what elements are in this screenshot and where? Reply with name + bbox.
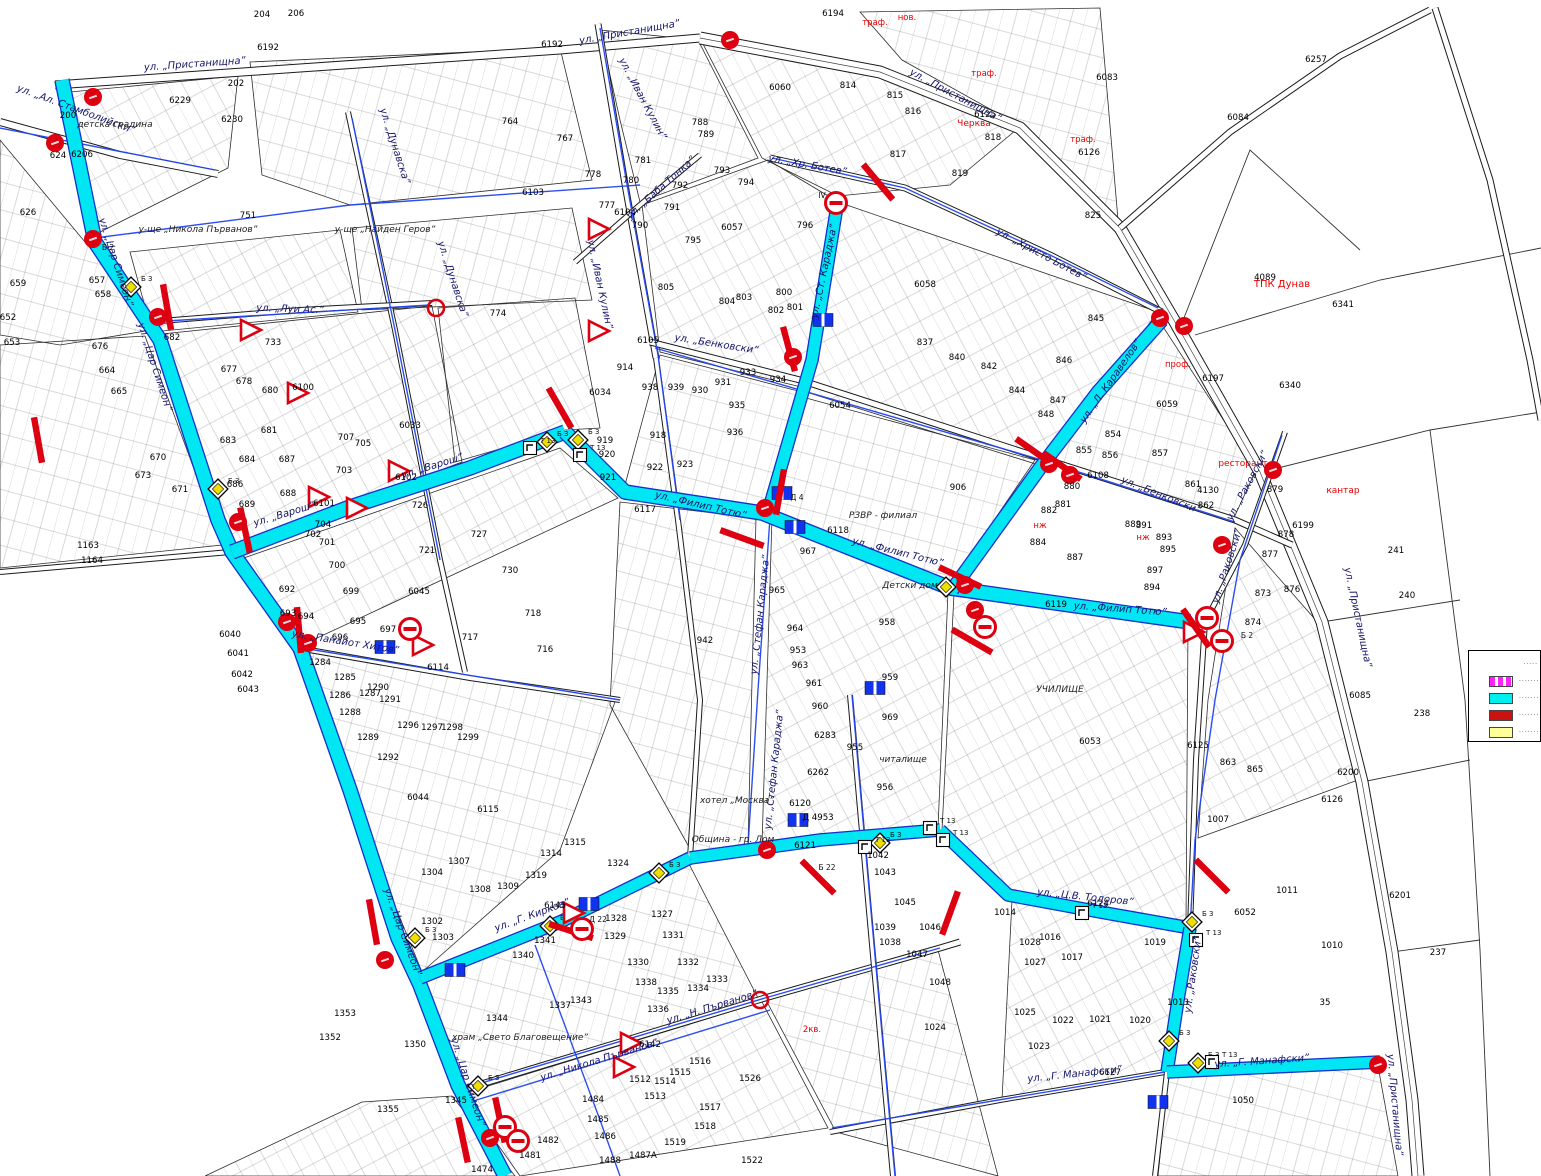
hydrant-circle-icon	[1369, 1056, 1387, 1074]
parcel-number: 1337	[549, 1001, 571, 1011]
parcel-number: 803	[736, 293, 752, 303]
parcel-number: 6053	[1079, 737, 1101, 747]
parcel-number: 1338	[635, 978, 657, 988]
map-canvas[interactable]: Б 3Б 3Б 3Б 3Б 3Б 3Б 3Б 3Б 3Б 3Б 3Б 3Б 3Т…	[0, 0, 1541, 1176]
valve-bar-icon	[366, 899, 380, 945]
parcel-number: 6199	[1292, 521, 1314, 531]
fitting-square-icon	[924, 822, 937, 835]
parcel-number: 1290	[367, 683, 389, 693]
parcel-number: 814	[840, 81, 856, 91]
parcel-number: 895	[1160, 545, 1176, 555]
parcel-number: 705	[355, 439, 371, 449]
parcel-number: 1025	[1014, 1008, 1036, 1018]
hydrant-flag-icon	[445, 964, 465, 977]
parcel-number: 6057	[721, 223, 743, 233]
cadastral-map-root: Б 3Б 3Б 3Б 3Б 3Б 3Б 3Б 3Б 3Б 3Б 3Б 3Б 3Т…	[0, 0, 1541, 1176]
parcel-number: 847	[1050, 396, 1066, 406]
hydrant-circle-icon	[1040, 455, 1058, 473]
parcel-boundary	[1262, 412, 1541, 472]
parcel-number: 1043	[874, 868, 896, 878]
parcel-number: 241	[1388, 546, 1404, 556]
parcel-number: 1488	[599, 1156, 621, 1166]
parcel-number: 718	[525, 609, 541, 619]
parcel-number: 683	[220, 436, 236, 446]
square-code-label: Т 13	[1205, 929, 1221, 937]
parcel-number: 794	[738, 178, 754, 188]
parcel-number: 795	[685, 236, 701, 246]
parcel-number: 6084	[1227, 113, 1249, 123]
parcel-number: 1340	[512, 951, 534, 961]
parcel-number: 730	[502, 566, 518, 576]
hydrant-circle-icon	[84, 230, 102, 248]
parcel-number: 237	[1430, 948, 1446, 958]
no-entry-sign-icon	[1197, 608, 1218, 629]
parcel-number: 816	[905, 107, 921, 117]
parcel-number: 1047	[906, 950, 928, 960]
parcel-number: 1028	[1019, 938, 1041, 948]
parcel-number: 1319	[525, 871, 547, 881]
parcel-number: 880	[1064, 482, 1080, 492]
parcel-number: 6058	[914, 280, 936, 290]
no-entry-sign-icon	[1212, 631, 1233, 652]
parcel-number: 6126	[1321, 795, 1343, 805]
parcel-number: 1020	[1129, 1016, 1151, 1026]
parcel-number: 721	[419, 546, 435, 556]
parcel-number: 876	[1284, 585, 1300, 595]
parcel-number: 837	[917, 338, 933, 348]
parcel-number: 6105	[637, 336, 659, 346]
legend-item-legend-cyan: ··········	[1489, 690, 1540, 707]
parcel-number: 6201	[1389, 891, 1411, 901]
parcel-number: 1288	[339, 708, 361, 718]
poi-label: РЗВР - филиал	[849, 511, 917, 521]
parcel-number: 204	[254, 10, 270, 20]
road-surface	[1120, 10, 1430, 228]
legend-red-label: ··········	[1519, 712, 1540, 719]
parcel-number: 877	[1262, 550, 1278, 560]
red-annotation-label: проф.	[1165, 360, 1191, 370]
parcel-number: 700	[329, 561, 345, 571]
parcel-number: 1353	[334, 1009, 356, 1019]
parcel-number: 6083	[1096, 73, 1118, 83]
hydrant-circle-icon	[956, 576, 974, 594]
parcel-number: 686	[227, 480, 243, 490]
parcel-number: 863	[1220, 758, 1236, 768]
parcel-number: 1327	[651, 910, 673, 920]
parcel-number: 6043	[237, 685, 259, 695]
parcel-number: 884	[1030, 538, 1046, 548]
parcel-number: 1292	[377, 753, 399, 763]
red-annotation-label: нж	[1136, 533, 1150, 543]
parcel-number: 1518	[694, 1122, 716, 1132]
parcel-number: 678	[236, 377, 252, 387]
parcel-number: 1021	[1089, 1015, 1111, 1025]
parcel-number: 796	[797, 221, 813, 231]
parcel-number: 878	[1278, 530, 1294, 540]
parcel-number: 1328	[605, 914, 627, 924]
parcel-number: 659	[10, 279, 26, 289]
parcel-number: 665	[111, 387, 127, 397]
parcel-number: 6034	[589, 388, 611, 398]
parcel-number: 6101	[313, 499, 335, 509]
parcel-number: 695	[350, 617, 366, 627]
parcel-number: 1512	[629, 1075, 651, 1085]
parcel-number: 6283	[814, 731, 836, 741]
poi-label: детска градина	[76, 120, 152, 130]
parcel-number: 1302	[421, 917, 443, 927]
parcel-number: 815	[887, 91, 903, 101]
legend-item-legend-yellow: ··········	[1489, 724, 1540, 741]
parcel-number: 1487А	[629, 1151, 657, 1161]
legend-item-legend-magenta: ··········	[1489, 673, 1540, 690]
parcel-number: 923	[677, 460, 693, 470]
parcel-number: 933	[740, 368, 756, 378]
parcel-number: 780	[623, 176, 639, 186]
parcel-number: 6262	[807, 768, 829, 778]
tiny-code-label: Д 4	[790, 493, 803, 502]
legend-magenta-swatch	[1489, 676, 1513, 687]
parcel-number: 704	[315, 520, 331, 530]
parcel-number: 6192	[257, 43, 279, 53]
parcel-number: 6206	[71, 150, 93, 160]
parcel-number: 697	[380, 625, 396, 635]
parcel-number: 1355	[377, 1105, 399, 1115]
diamond-code-label: Б 3	[141, 275, 152, 283]
red-annotation-label: нов.	[898, 13, 916, 23]
parcel-number: 6059	[1156, 400, 1178, 410]
parcel-number: 1017	[1061, 953, 1083, 963]
parcel-number: 6197	[1202, 374, 1224, 384]
parcel-number: 1481	[519, 1151, 541, 1161]
parcel-number: 1482	[537, 1136, 559, 1146]
parcel-number: 1314	[540, 849, 562, 859]
parcel-number: 1343	[570, 996, 592, 1006]
parcel-number: 680	[262, 386, 278, 396]
parcel-number: 693	[280, 609, 296, 619]
parcel-number: 1304	[421, 868, 443, 878]
parcel-number: 842	[981, 362, 997, 372]
parcel-number: 6119	[1045, 600, 1067, 610]
parcel-number: 202	[228, 79, 244, 89]
parcel-number: 914	[617, 363, 633, 373]
parcel-number: 1513	[644, 1092, 666, 1102]
parcel-number: 6117	[634, 505, 656, 515]
parcel-number: 733	[265, 338, 281, 348]
parcel-number: 800	[776, 288, 792, 298]
parcel-number: 781	[635, 156, 651, 166]
parcel-number: 846	[1056, 356, 1072, 366]
poi-label: Община - гр. Лом	[692, 835, 775, 845]
parcel-number: 701	[319, 538, 335, 548]
parcel-number: 35	[1320, 998, 1331, 1008]
tiny-code-label: Б 2	[102, 243, 115, 252]
parcel-number: 855	[1076, 446, 1092, 456]
parcel-number: 1284	[309, 658, 331, 668]
parcel-number: 804	[719, 297, 735, 307]
parcel-number: 1164	[81, 556, 103, 566]
parcel-number: 1309	[497, 882, 519, 892]
legend-cyan-swatch	[1489, 693, 1513, 704]
parcel-number: 6041	[227, 649, 249, 659]
parcel-number: 848	[1038, 410, 1054, 420]
parcel-number: 1291	[379, 695, 401, 705]
parcel-number: 825	[1085, 211, 1101, 221]
parcel-number: 624	[50, 151, 66, 161]
parcel-number: 774	[490, 309, 506, 319]
parcel-number: 1307	[448, 857, 470, 867]
parcel-number: 854	[1105, 430, 1121, 440]
parcel-number: 726	[412, 501, 428, 511]
parcel-number: 764	[502, 117, 518, 127]
parcel-number: 6044	[407, 793, 429, 803]
parcel-number: 1038	[879, 938, 901, 948]
parcel-number: 819	[952, 169, 968, 179]
parcel-number: 931	[715, 378, 731, 388]
road-casing	[1120, 10, 1430, 228]
parcel-number: 881	[1055, 500, 1071, 510]
parcel-number: 1046	[919, 923, 941, 933]
parcel-number: 6121	[794, 841, 816, 851]
parcel-number: 1516	[689, 1057, 711, 1067]
parcel-number: 873	[1255, 589, 1271, 599]
parcel-number: 687	[279, 455, 295, 465]
parcel-number: 673	[135, 471, 151, 481]
hydrant-circle-icon	[149, 308, 167, 326]
parcel-number: 802	[768, 306, 784, 316]
red-annotation-label: траф.	[862, 18, 888, 28]
tiny-code-label: IV	[818, 191, 826, 200]
hydrant-circle-icon	[1175, 317, 1193, 335]
parcel-number: 6108	[1087, 471, 1109, 481]
parcel-number: 1519	[664, 1138, 686, 1148]
parcel-number: 793	[714, 166, 730, 176]
parcel-number: 6200	[1337, 768, 1359, 778]
map-legend: ········································…	[1468, 650, 1541, 742]
parcel-number: 653	[4, 338, 20, 348]
no-entry-sign-icon	[508, 1131, 529, 1152]
parcel-number: 1474	[471, 1165, 493, 1175]
parcel-number: 1335	[657, 987, 679, 997]
parcel-number: 707	[338, 433, 354, 443]
parcel-number: 6126	[1078, 148, 1100, 158]
fitting-square-icon	[937, 834, 950, 847]
parcel-number: 919	[597, 436, 613, 446]
parcel-number: Д 4953	[802, 813, 833, 823]
parcel-number: 702	[305, 530, 321, 540]
parcel-number: 626	[20, 208, 36, 218]
diamond-code-label: Б 3	[890, 831, 901, 839]
no-entry-sign-icon	[975, 617, 996, 638]
parcel-number: 789	[698, 130, 714, 140]
parcel-number: 6341	[1332, 300, 1354, 310]
hydrant-circle-icon	[756, 499, 774, 517]
parcel-number: 6229	[169, 96, 191, 106]
parcel-number: 865	[1247, 765, 1263, 775]
parcel-number: 6103	[522, 188, 544, 198]
parcel-number: 1324	[607, 859, 629, 869]
parcel-number: 922	[647, 463, 663, 473]
parcel-number: 1352	[319, 1033, 341, 1043]
valve-bar-icon	[1193, 857, 1230, 894]
tiny-code-label: Д 22	[589, 915, 607, 924]
parcel-number: 939	[668, 383, 684, 393]
parcel-number: 751	[240, 211, 256, 221]
parcel-number: 861	[1185, 480, 1201, 490]
parcel-number: 1296	[397, 721, 419, 731]
parcel-number: 777	[599, 201, 615, 211]
red-annotation-label: кантар	[1326, 486, 1360, 496]
hydrant-circle-icon	[481, 1129, 499, 1147]
parcel-number: 818	[985, 133, 1001, 143]
hydrant-circle-icon	[784, 348, 802, 366]
parcel-number: 1016	[1039, 933, 1061, 943]
parcel-number: 1341	[534, 936, 556, 946]
parcel-number: 958	[879, 618, 895, 628]
parcel-number: 965	[769, 586, 785, 596]
parcel-number: 206	[288, 9, 304, 19]
parcel-number: 671	[172, 485, 188, 495]
parcel-number: 6060	[769, 83, 791, 93]
parcel-number: 1048	[929, 978, 951, 988]
parcel-number: 6040	[219, 630, 241, 640]
parcel-number: 1298	[441, 723, 463, 733]
parcel-number: 918	[650, 431, 666, 441]
legend-yellow-label: ··········	[1519, 729, 1540, 736]
parcel-number: 879	[1267, 485, 1283, 495]
parcel-number: 1330	[627, 958, 649, 968]
parcel-number: 1486	[594, 1132, 616, 1142]
parcel-number: 857	[1152, 449, 1168, 459]
parcel-number: 790	[632, 221, 648, 231]
parcel-number: 1023	[1028, 1042, 1050, 1052]
parcel-number: 6125	[1187, 741, 1209, 751]
poi-label: у-ще „Найден Геров”	[334, 225, 436, 235]
poi-label: хотел „Москва”	[699, 796, 774, 806]
parcel-number: 891	[1136, 521, 1152, 531]
parcel-number: 1286	[329, 691, 351, 701]
parcel-number: 1331	[662, 931, 684, 941]
parcel-number: 6045	[408, 587, 430, 597]
parcel-number: 856	[1102, 451, 1118, 461]
parcel-number: 967	[800, 547, 816, 557]
parcel-number: 1045	[894, 898, 916, 908]
legend-magenta-label: ··········	[1519, 678, 1540, 685]
parcel-number: 6118	[827, 526, 849, 536]
parcel-number: 1345	[445, 1096, 467, 1106]
red-annotation-label: 2кв.	[803, 1025, 821, 1035]
hydrant-circle-icon	[229, 513, 247, 531]
parcel-number: 6052	[1234, 908, 1256, 918]
parcel-number: 788	[692, 118, 708, 128]
hydrant-flag-icon	[1148, 1096, 1168, 1109]
parcel-number: 240	[1399, 591, 1415, 601]
parcel-number: 934	[770, 375, 786, 385]
hydrant-circle-icon	[1151, 309, 1169, 327]
parcel-number: 961	[806, 679, 822, 689]
parcel-number: 6194	[822, 9, 844, 19]
legend-cyan-label: ··········	[1519, 695, 1540, 702]
parcel-number: 6257	[1305, 55, 1327, 65]
parcel-number: 1485	[587, 1115, 609, 1125]
parcel-number: 238	[1414, 709, 1430, 719]
parcel-number: 897	[1147, 566, 1163, 576]
parcel-number: 1344	[486, 1014, 508, 1024]
parcel-number: 684	[239, 455, 255, 465]
street-name-label: ул. „Пристанищна”	[1341, 565, 1373, 669]
parcel-number: 681	[261, 426, 277, 436]
red-annotation-label: ТПК Дунав	[1253, 279, 1310, 290]
parcel-number: 1050	[1232, 1096, 1254, 1106]
parcel-number: 1011	[1276, 886, 1298, 896]
valve-bar-icon	[939, 890, 961, 935]
red-annotation-label: траф.	[1070, 135, 1096, 145]
city-block	[1158, 1066, 1398, 1176]
parcel-number: 717	[462, 633, 478, 643]
road-casing	[1435, 8, 1541, 420]
parcel-number: 893	[1156, 533, 1172, 543]
parcel-number: 1522	[741, 1156, 763, 1166]
legend-item-legend-red: ··········	[1489, 707, 1540, 724]
parcel-number: 664	[99, 366, 115, 376]
parcel-number: 894	[1144, 583, 1160, 593]
parcel-number: 1010	[1321, 941, 1343, 951]
parcel-boundary	[1362, 760, 1470, 782]
parcel-number: 964	[787, 624, 803, 634]
city-block	[642, 160, 835, 388]
parcel-number: 1315	[564, 838, 586, 848]
parcel-number: 6085	[1349, 691, 1371, 701]
diamond-code-label: Б 3	[1179, 1029, 1190, 1037]
parcel-number: 1332	[677, 958, 699, 968]
parcel-number: 1024	[924, 1023, 946, 1033]
parcel-number: 960	[812, 702, 828, 712]
parcel-number: 699	[343, 587, 359, 597]
parcel-number: 6100	[292, 383, 314, 393]
parcel-number: 791	[664, 203, 680, 213]
diamond-code-label: Б 3	[557, 430, 568, 438]
poi-label: храм „Свето Благовещение”	[451, 1033, 588, 1043]
parcel-number: 1285	[334, 673, 356, 683]
parcel-number: 1014	[994, 908, 1016, 918]
parcel-number: 6114	[427, 663, 449, 673]
parcel-number: 1333	[706, 975, 728, 985]
parcel-number: 936	[727, 428, 743, 438]
parcel-number: 6120	[789, 799, 811, 809]
parcel-number: 727	[471, 530, 487, 540]
parcel-number: 1297	[421, 723, 443, 733]
parcel-number: 874	[1245, 618, 1261, 628]
diamond-code-label: Б 3	[488, 1074, 499, 1082]
red-annotation-label: Черква	[957, 119, 991, 129]
parcel-number: 676	[92, 342, 108, 352]
legend-red-swatch	[1489, 710, 1513, 721]
square-code-label: Т 13	[539, 437, 555, 445]
parcel-number: 935	[729, 401, 745, 411]
parcel-number: 6042	[231, 670, 253, 680]
parcel-boundary	[1430, 430, 1490, 1176]
tiny-code-label: Б 2	[1241, 631, 1254, 640]
parcel-number: 682	[164, 333, 180, 343]
red-annotation-label: траф.	[971, 69, 997, 79]
diamond-code-label: Б 3	[669, 861, 680, 869]
parcel-number: 845	[1088, 314, 1104, 324]
square-code-label: Т 13	[939, 817, 955, 825]
road-surface	[1435, 8, 1541, 420]
poi-label: у-ще „Никола Първанов”	[138, 225, 258, 235]
parcel-number: 1329	[604, 932, 626, 942]
parcel-number: 953	[790, 646, 806, 656]
parcel-number: 1289	[357, 733, 379, 743]
